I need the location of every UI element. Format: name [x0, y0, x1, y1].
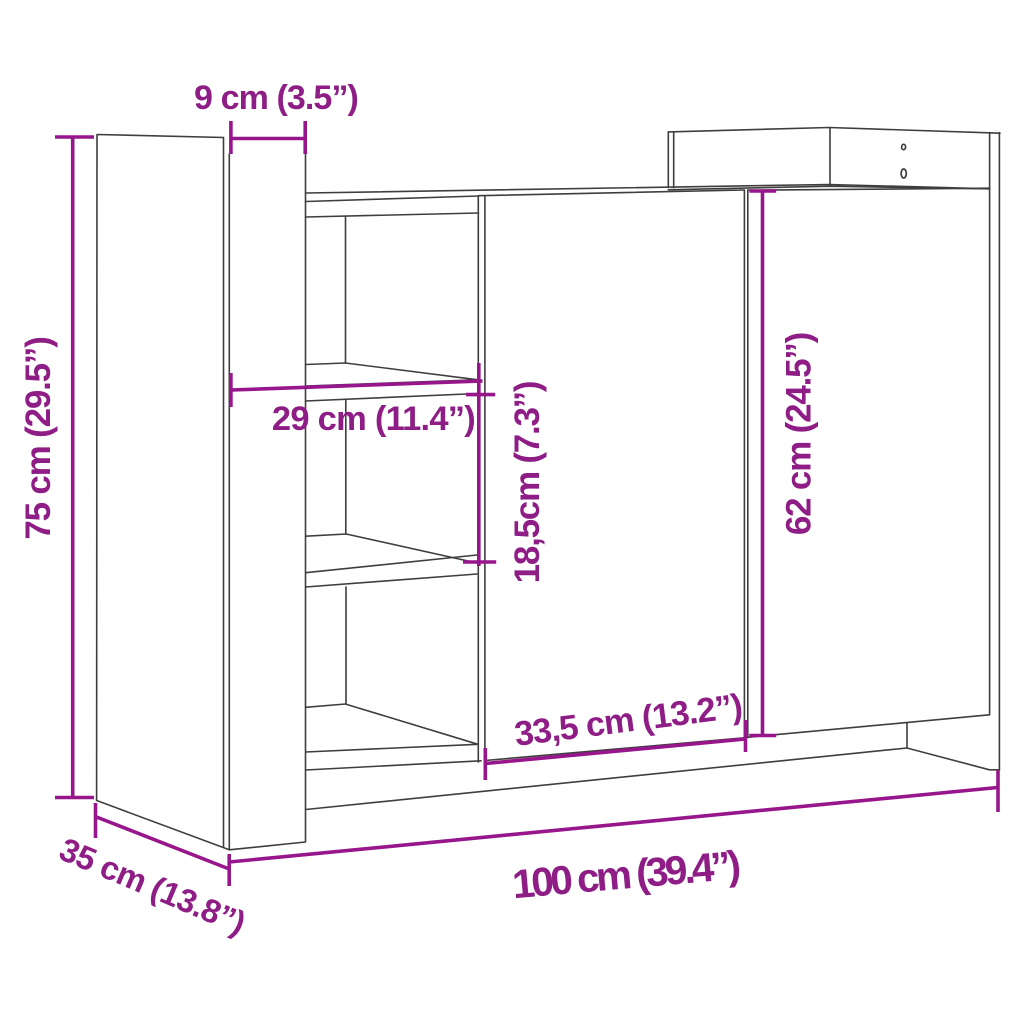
svg-text:62 cm (24.5”): 62 cm (24.5”)	[780, 333, 819, 535]
svg-text:75 cm (29.5”): 75 cm (29.5”)	[19, 337, 58, 539]
svg-text:100 cm (39.4”): 100 cm (39.4”)	[510, 842, 741, 908]
svg-text:9 cm (3.5”): 9 cm (3.5”)	[194, 79, 358, 117]
svg-text:18,5cm (7.3”): 18,5cm (7.3”)	[508, 382, 547, 584]
svg-text:29 cm (11.4”): 29 cm (11.4”)	[272, 400, 475, 438]
